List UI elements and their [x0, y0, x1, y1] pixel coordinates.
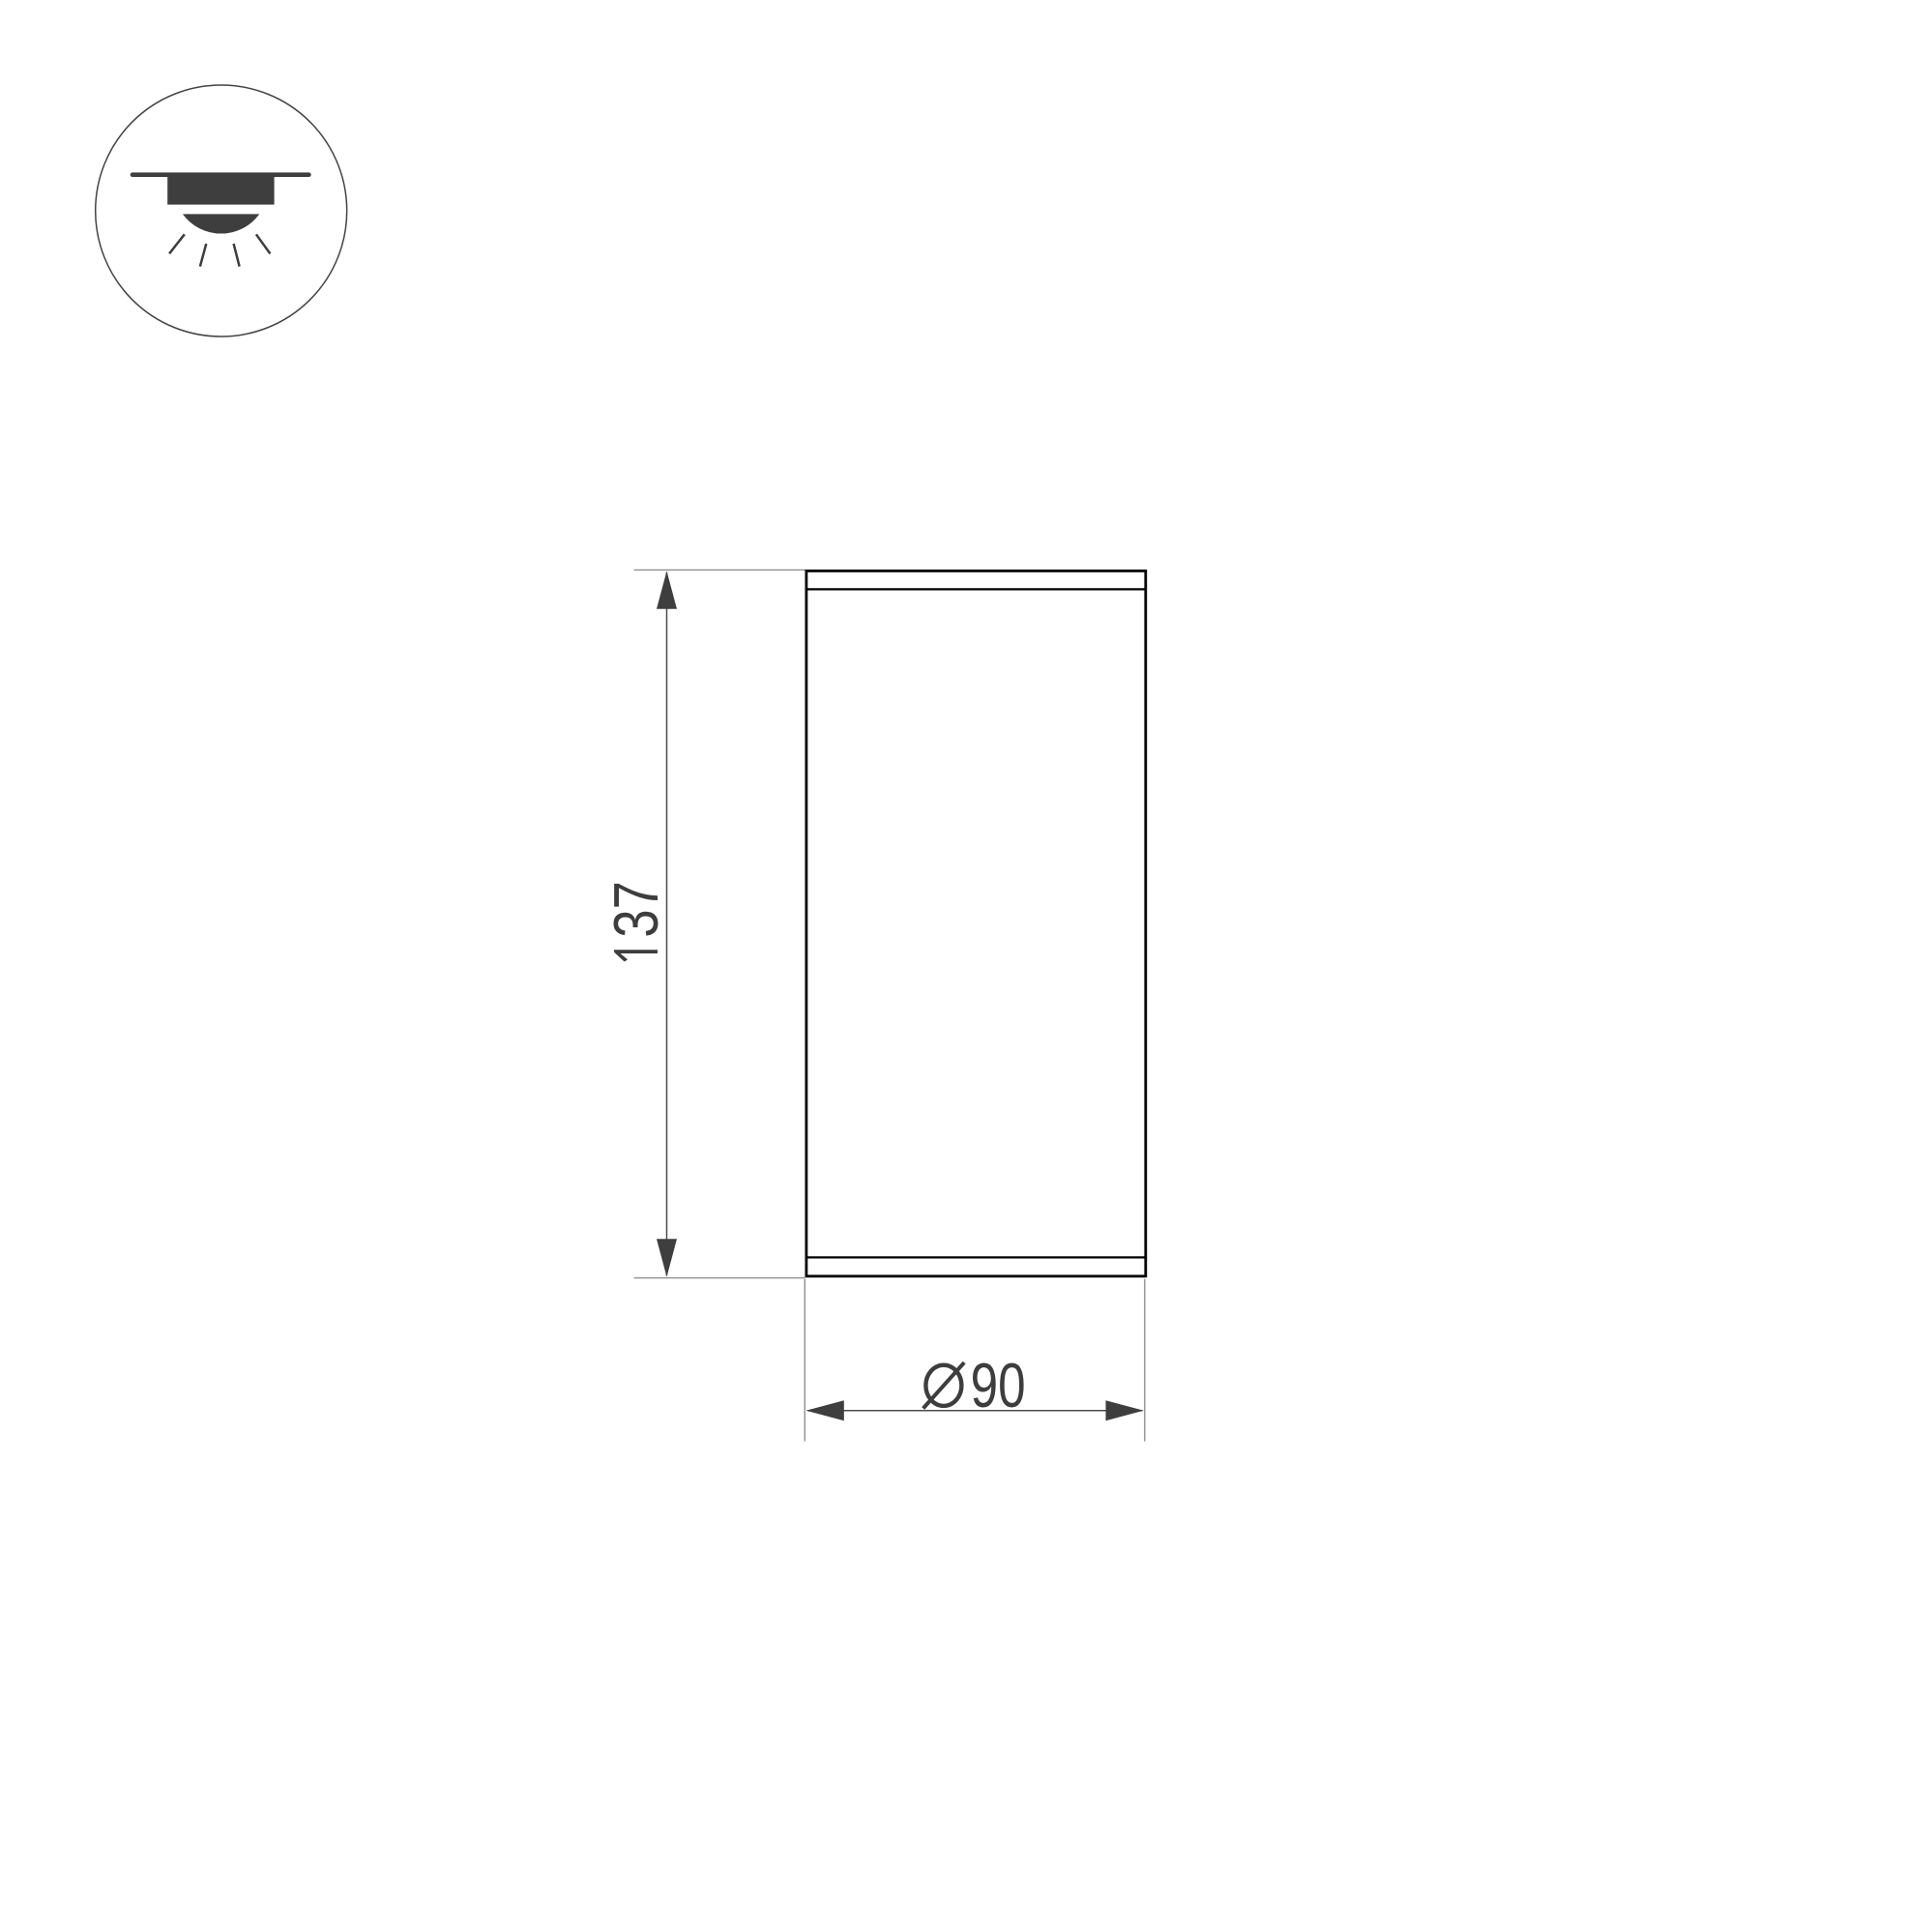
svg-text:37: 37	[600, 881, 671, 937]
svg-text:90: 90	[971, 1350, 1026, 1420]
